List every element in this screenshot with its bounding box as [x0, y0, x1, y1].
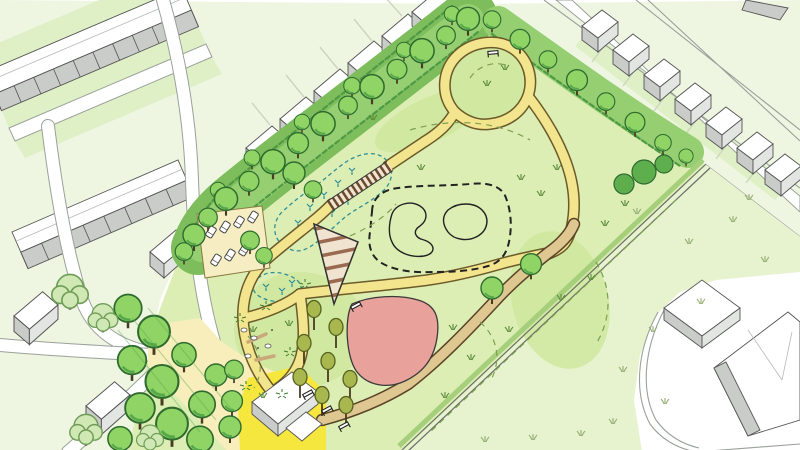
- masterplan-illustration: [0, 0, 800, 450]
- tree-icon: [108, 427, 132, 450]
- track-infield: [444, 204, 487, 239]
- tree-icon: [187, 426, 213, 450]
